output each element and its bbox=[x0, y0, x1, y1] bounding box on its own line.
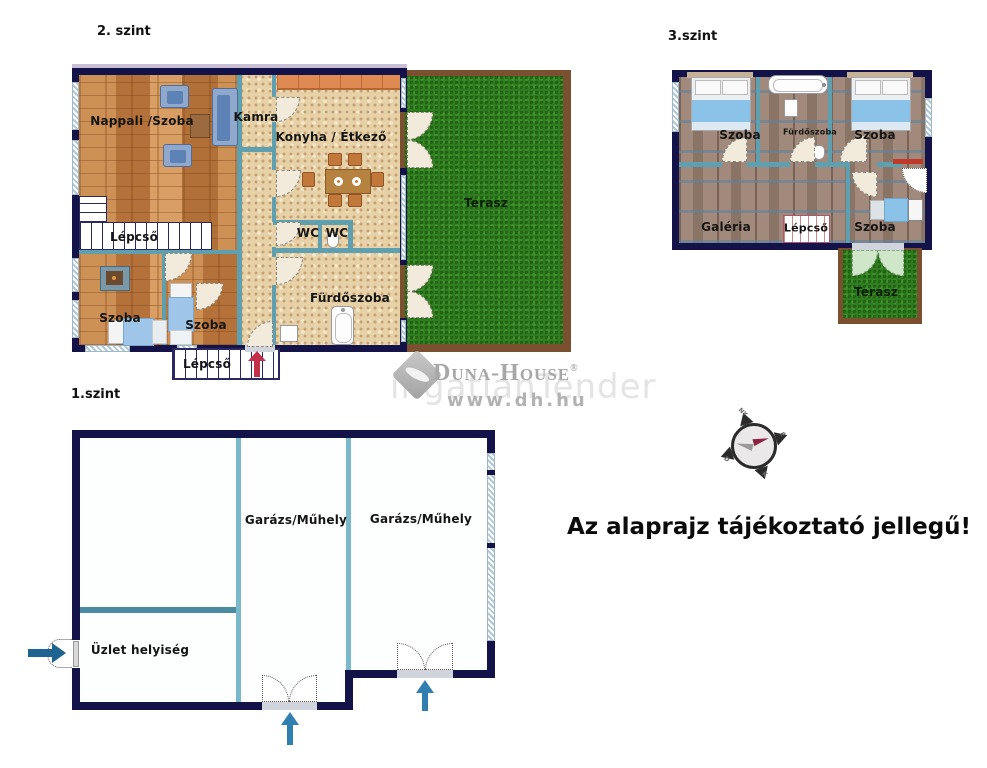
bed bbox=[870, 198, 922, 220]
entrance-arrow-icon bbox=[416, 680, 434, 693]
wall-segment bbox=[72, 430, 80, 710]
wall-szoba-top bbox=[79, 250, 237, 254]
wall-segment bbox=[346, 438, 351, 670]
entrance-arrow-icon bbox=[281, 712, 299, 725]
bathtub bbox=[768, 75, 828, 94]
room-label-szoba-bal: Szoba bbox=[719, 128, 761, 142]
room-label-szoba1: Szoba bbox=[99, 311, 141, 325]
floor1-title: 1.szint bbox=[71, 387, 120, 402]
chair bbox=[302, 172, 315, 187]
wall-red-segment bbox=[893, 159, 923, 164]
wall-segment bbox=[747, 162, 790, 167]
armchair bbox=[163, 144, 192, 167]
window bbox=[925, 98, 932, 137]
wall-segment bbox=[679, 162, 722, 167]
window bbox=[672, 82, 679, 132]
bathtub bbox=[331, 306, 354, 345]
registered-mark: ® bbox=[570, 363, 578, 374]
window bbox=[401, 175, 406, 260]
wall-kamra-bottom bbox=[242, 147, 272, 152]
window bbox=[401, 320, 406, 342]
wall-segment bbox=[487, 470, 495, 475]
wall-segment bbox=[72, 430, 495, 438]
door-leaf bbox=[73, 641, 79, 667]
stairs-landing bbox=[79, 196, 107, 223]
room-label-terasz3: Terasz bbox=[854, 285, 898, 299]
window bbox=[85, 345, 130, 352]
disclaimer-text: Az alaprajz tájékoztató jellegű! bbox=[567, 514, 971, 540]
room-label-wc2: WC bbox=[326, 226, 348, 240]
double-bed bbox=[851, 77, 911, 131]
door-sill bbox=[397, 670, 453, 678]
window bbox=[72, 82, 79, 130]
dining-table bbox=[325, 169, 371, 194]
brand-text: Duna-House bbox=[433, 360, 570, 386]
window bbox=[72, 300, 79, 338]
room-label-garazs2: Garázs/Műhely bbox=[370, 512, 472, 526]
brand-name: Duna-House® bbox=[433, 360, 579, 387]
chair bbox=[328, 194, 342, 207]
chair bbox=[348, 194, 362, 207]
room-label-nappali: Nappali /Szoba bbox=[90, 114, 194, 128]
room-label-uzlet: Üzlet helyiség bbox=[91, 643, 189, 657]
wall-segment bbox=[272, 75, 276, 97]
floor-plan: 2. szint bbox=[0, 0, 987, 768]
double-bed bbox=[691, 77, 751, 131]
wall-segment bbox=[828, 77, 832, 165]
wall-segment bbox=[815, 162, 850, 167]
wall-segment bbox=[756, 77, 760, 165]
stairs-up-arrow-shaft bbox=[254, 360, 260, 377]
room-label-szoba2: Szoba bbox=[185, 318, 227, 332]
kitchen-counter bbox=[277, 75, 402, 90]
wall-segment bbox=[846, 167, 850, 243]
wall-segment bbox=[236, 438, 241, 702]
room-label-lepcso3: Lépcső bbox=[784, 222, 828, 235]
washbasin bbox=[280, 325, 298, 342]
floor3-title: 3.szint bbox=[668, 29, 717, 44]
window bbox=[72, 140, 79, 195]
entrance-arrow-shaft bbox=[28, 649, 52, 657]
washbasin bbox=[784, 99, 798, 117]
fireplace bbox=[100, 266, 130, 291]
brand-url: www.dh.hu bbox=[447, 390, 588, 411]
floor1-interior-right bbox=[345, 438, 487, 670]
room-label-lepcso-also: Lépcső bbox=[183, 357, 231, 371]
room-label-konyha: Konyha / Étkező bbox=[275, 130, 386, 144]
bed bbox=[168, 283, 192, 344]
door-sill bbox=[262, 702, 317, 710]
armchair bbox=[160, 85, 189, 108]
wall-segment bbox=[272, 197, 276, 222]
room-label-furdoszoba2: Fürdőszoba bbox=[310, 291, 390, 305]
room-label-furdoszoba3: Fürdőszoba bbox=[783, 128, 837, 137]
entrance-arrow-icon bbox=[52, 643, 66, 663]
chair bbox=[348, 153, 362, 166]
room-label-terasz2: Terasz bbox=[464, 196, 508, 210]
room-label-kamra: Kamra bbox=[234, 110, 279, 124]
wall-segment bbox=[80, 607, 236, 613]
chair bbox=[371, 172, 384, 187]
room-label-lepcso-felso: Lépcső bbox=[110, 230, 158, 244]
floor2-title: 2. szint bbox=[97, 24, 151, 39]
compass-dial bbox=[731, 423, 777, 469]
room-label-garazs1: Garázs/Műhely bbox=[245, 513, 347, 527]
door-sill bbox=[852, 243, 904, 250]
wall-segment bbox=[487, 543, 495, 548]
chair bbox=[328, 153, 342, 166]
wall-furdo-top bbox=[272, 248, 402, 253]
window bbox=[72, 258, 79, 292]
entrance-arrow-shaft bbox=[422, 693, 428, 711]
room-label-szoba-jobb: Szoba bbox=[854, 128, 896, 142]
room-label-szoba-also: Szoba bbox=[854, 220, 896, 234]
floor1-interior-left bbox=[80, 438, 345, 702]
room-label-galeria: Galéria bbox=[701, 220, 751, 234]
room-label-wc1: WC bbox=[297, 226, 319, 240]
window bbox=[401, 78, 406, 108]
entrance-arrow-shaft bbox=[287, 725, 293, 745]
